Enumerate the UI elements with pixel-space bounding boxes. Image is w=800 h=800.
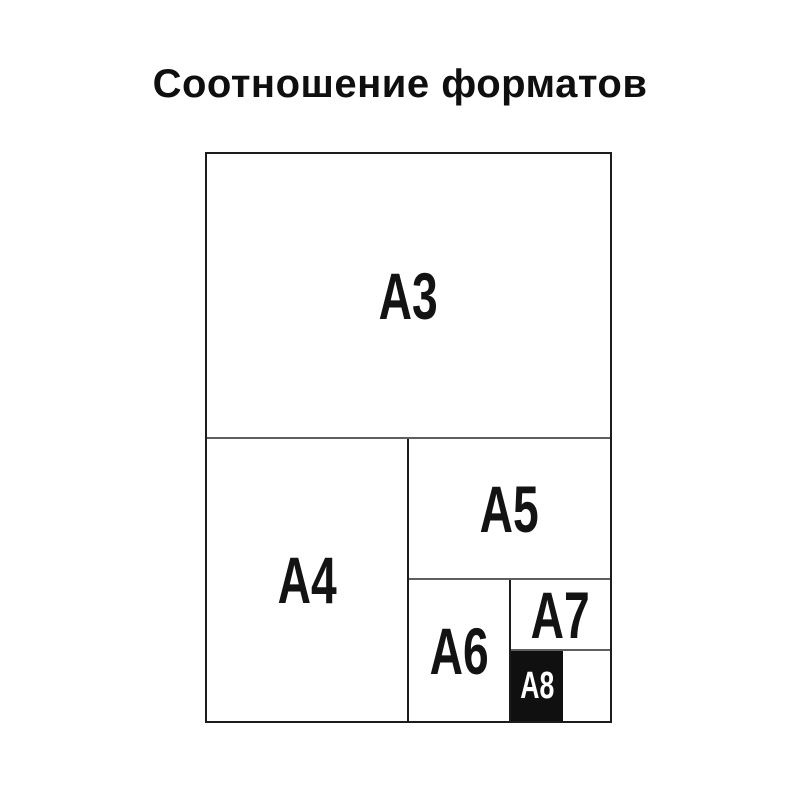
page: Соотношение форматов A3 A4 A5 A6 A7 A8: [0, 0, 800, 800]
format-ratio-diagram: A3 A4 A5 A6 A7 A8: [205, 152, 612, 723]
format-label-a3: A3: [379, 263, 438, 329]
format-cell-a6: A6: [409, 580, 511, 721]
page-title: Соотношение форматов: [0, 64, 800, 104]
empty-remainder-cell: [563, 651, 610, 721]
format-label-a4: A4: [277, 547, 336, 613]
format-cell-a4: A4: [207, 439, 409, 721]
format-label-a7: A7: [531, 582, 590, 648]
format-label-a8: A8: [520, 667, 554, 705]
format-cell-a3: A3: [207, 154, 610, 439]
format-cell-a5: A5: [409, 439, 610, 580]
format-label-a5: A5: [480, 476, 539, 542]
format-label-a6: A6: [429, 618, 488, 684]
format-cell-a7: A7: [511, 580, 610, 651]
format-cell-a8: A8: [511, 651, 563, 721]
